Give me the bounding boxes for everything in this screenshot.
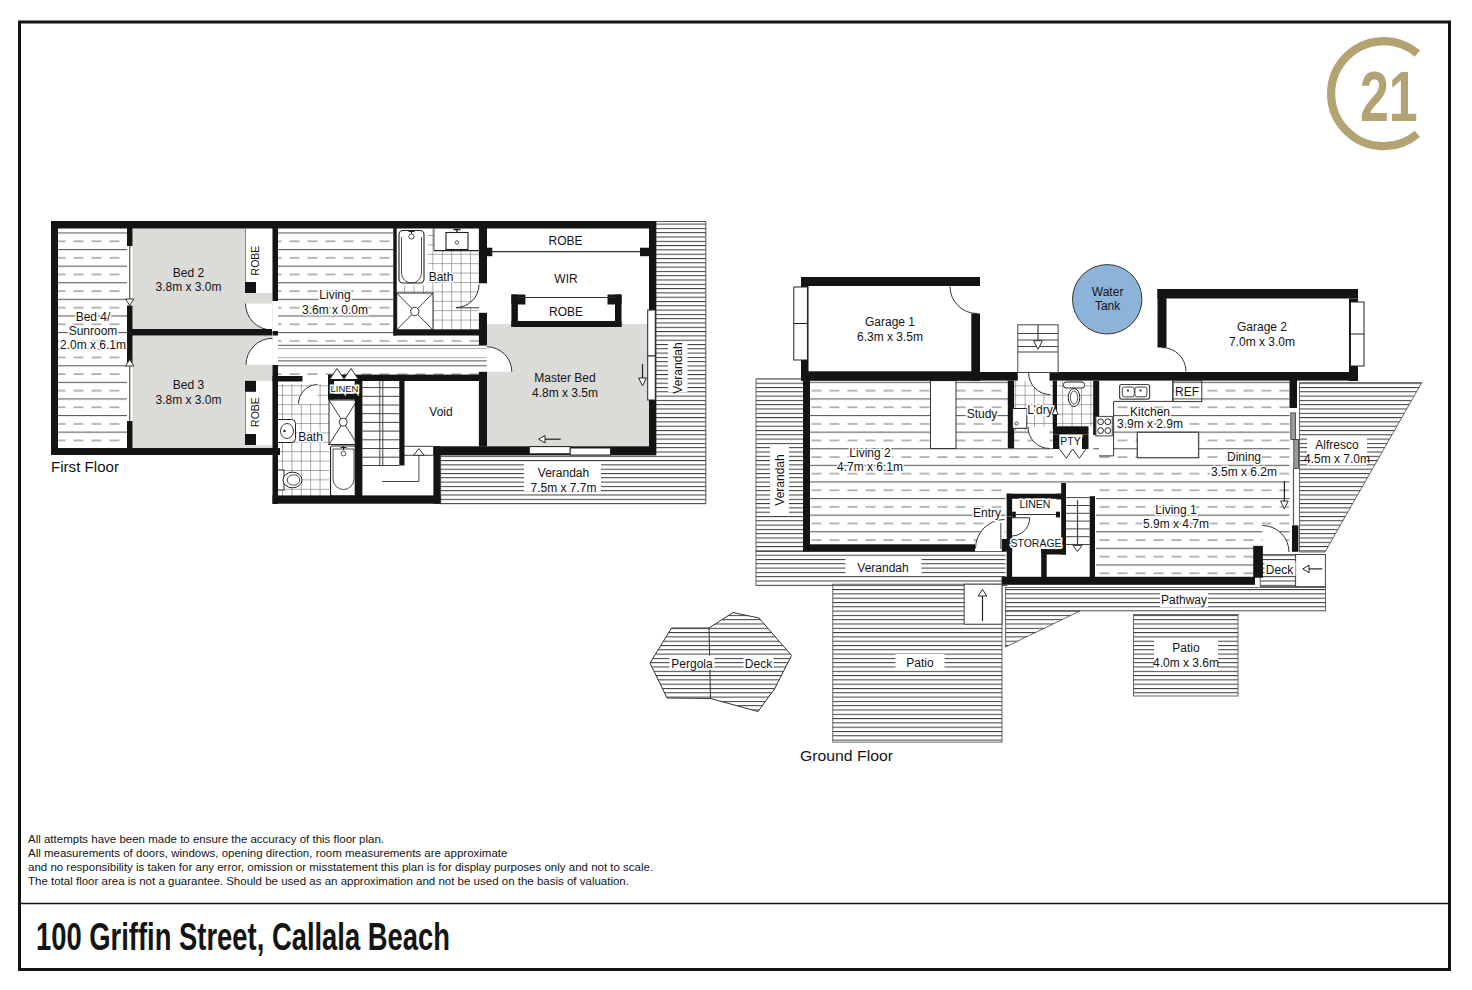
svg-text:Verandah: Verandah bbox=[773, 454, 787, 505]
svg-text:L’dry: L’dry bbox=[1027, 403, 1052, 417]
svg-text:LINEN: LINEN bbox=[331, 383, 359, 394]
svg-text:4.0m x 3.6m: 4.0m x 3.6m bbox=[1153, 656, 1219, 670]
svg-text:3.8m x 3.0m: 3.8m x 3.0m bbox=[155, 393, 221, 407]
svg-text:4.7m x 6.1m: 4.7m x 6.1m bbox=[837, 460, 903, 474]
svg-text:Pathway: Pathway bbox=[1161, 593, 1207, 607]
svg-text:ROBE: ROBE bbox=[548, 234, 582, 248]
svg-text:7.0m x 3.0m: 7.0m x 3.0m bbox=[1229, 335, 1295, 349]
svg-text:Study: Study bbox=[967, 407, 998, 421]
svg-text:4.8m x 3.5m: 4.8m x 3.5m bbox=[532, 386, 598, 400]
svg-text:ROBE: ROBE bbox=[249, 397, 261, 427]
svg-text:Bath: Bath bbox=[429, 270, 454, 284]
svg-text:Alfresco: Alfresco bbox=[1315, 438, 1359, 452]
svg-text:Bed 4/: Bed 4/ bbox=[76, 310, 111, 324]
svg-text:Verandah: Verandah bbox=[857, 561, 908, 575]
svg-text:3.5m x 6.2m: 3.5m x 6.2m bbox=[1211, 465, 1277, 479]
svg-text:3.8m x 3.0m: 3.8m x 3.0m bbox=[155, 280, 221, 294]
svg-text:Patio: Patio bbox=[1172, 641, 1200, 655]
svg-text:21: 21 bbox=[1360, 58, 1418, 136]
svg-text:Living: Living bbox=[319, 288, 350, 302]
svg-text:Entry: Entry bbox=[973, 506, 1001, 520]
svg-text:5.9m x 4.7m: 5.9m x 4.7m bbox=[1143, 517, 1209, 531]
svg-text:REF: REF bbox=[1175, 385, 1199, 399]
svg-text:All attempts have been made to: All attempts have been made to ensure th… bbox=[28, 833, 384, 845]
svg-text:4.5m x 7.0m: 4.5m x 7.0m bbox=[1304, 452, 1370, 466]
svg-text:ROBE: ROBE bbox=[249, 246, 261, 276]
svg-text:Patio: Patio bbox=[906, 656, 934, 670]
svg-text:6.3m x 3.5m: 6.3m x 3.5m bbox=[857, 330, 923, 344]
svg-text:Bed 3: Bed 3 bbox=[173, 378, 205, 392]
svg-text:Living 1: Living 1 bbox=[1155, 503, 1197, 517]
svg-text:The total floor area is not a: The total floor area is not a guarantee.… bbox=[28, 875, 629, 887]
svg-text:and no responsibility is taken: and no responsibility is taken for any e… bbox=[28, 861, 653, 873]
svg-text:Verandah: Verandah bbox=[538, 466, 589, 480]
svg-text:STORAGE: STORAGE bbox=[1010, 537, 1061, 549]
svg-text:Master Bed: Master Bed bbox=[534, 371, 595, 385]
svg-text:Water: Water bbox=[1092, 285, 1124, 299]
svg-text:Bed 2: Bed 2 bbox=[173, 266, 205, 280]
svg-text:Bath: Bath bbox=[298, 430, 323, 444]
svg-text:3.6m x 0.0m: 3.6m x 0.0m bbox=[302, 303, 368, 317]
svg-text:ROBE: ROBE bbox=[549, 305, 583, 319]
svg-text:PTY: PTY bbox=[1060, 435, 1080, 447]
svg-text:Garage 2: Garage 2 bbox=[1237, 320, 1287, 334]
svg-text:Deck: Deck bbox=[1266, 563, 1294, 577]
svg-text:Pergola: Pergola bbox=[671, 657, 713, 671]
svg-text:Living 2: Living 2 bbox=[849, 446, 891, 460]
svg-text:Ground Floor: Ground Floor bbox=[800, 747, 893, 764]
svg-text:3.9m x 2.9m: 3.9m x 2.9m bbox=[1117, 417, 1183, 431]
svg-text:2.0m x 6.1m: 2.0m x 6.1m bbox=[60, 338, 126, 352]
svg-text:Dining: Dining bbox=[1227, 450, 1261, 464]
svg-text:All measurements of doors, win: All measurements of doors, windows, open… bbox=[28, 847, 507, 859]
svg-text:7.5m x 7.7m: 7.5m x 7.7m bbox=[530, 481, 596, 495]
svg-text:First Floor: First Floor bbox=[51, 458, 119, 475]
svg-text:Deck: Deck bbox=[745, 657, 773, 671]
svg-text:Void: Void bbox=[429, 405, 452, 419]
svg-text:Garage 1: Garage 1 bbox=[865, 315, 915, 329]
svg-text:Verandah: Verandah bbox=[671, 342, 685, 393]
svg-text:100 Griffin Street, Callala Be: 100 Griffin Street, Callala Beach bbox=[36, 916, 450, 958]
svg-text:Tank: Tank bbox=[1095, 299, 1121, 313]
svg-text:LINEN: LINEN bbox=[1020, 498, 1051, 510]
svg-text:WIR: WIR bbox=[554, 272, 578, 286]
svg-text:Sunroom: Sunroom bbox=[69, 324, 118, 338]
